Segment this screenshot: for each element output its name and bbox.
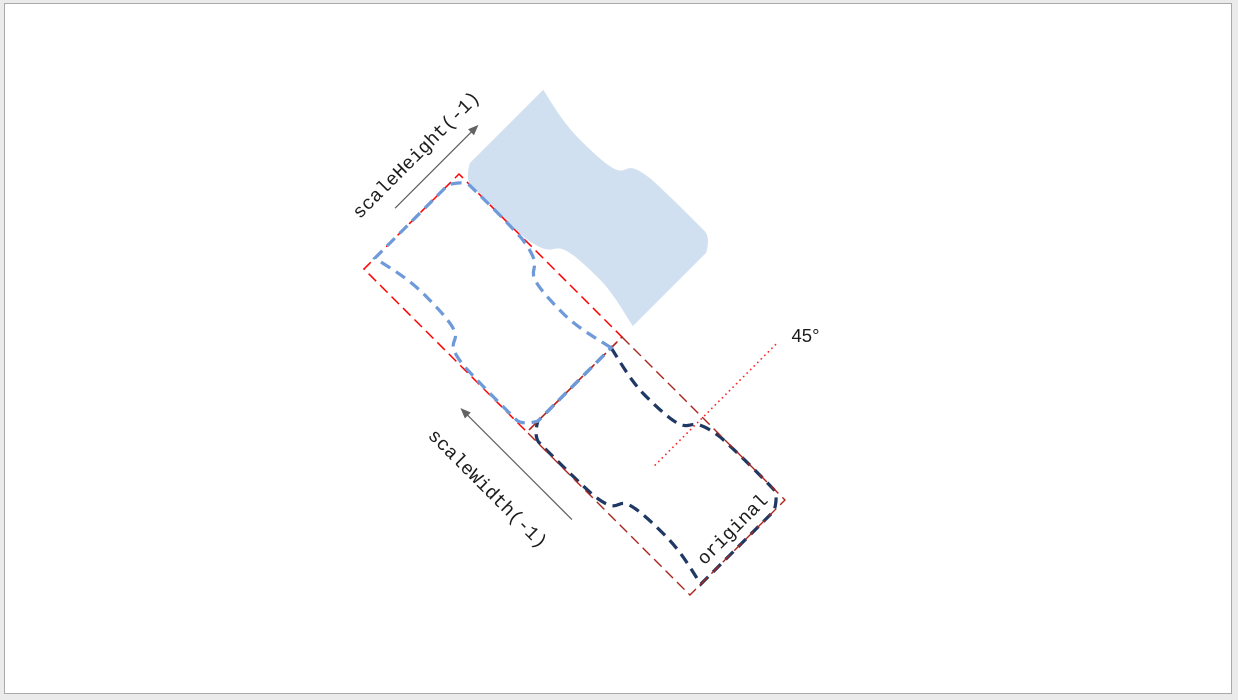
svg-text:45°: 45° xyxy=(792,325,820,346)
svg-text:scaleHeight(-1): scaleHeight(-1) xyxy=(348,87,484,223)
svg-text:original: original xyxy=(693,490,773,570)
svg-text:scaleWidth(-1): scaleWidth(-1) xyxy=(423,425,551,553)
